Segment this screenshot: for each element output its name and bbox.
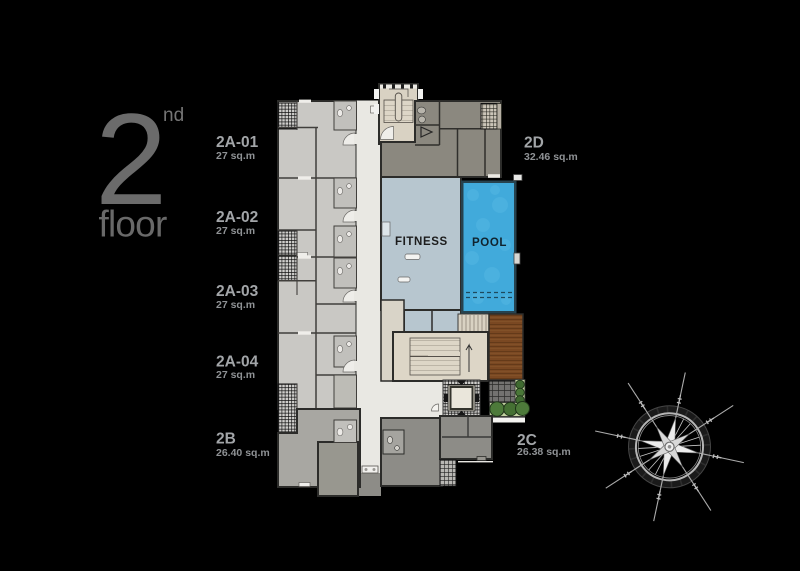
svg-text:26.38 sq.m: 26.38 sq.m [517,446,571,458]
svg-text:FITNESS: FITNESS [395,236,448,248]
svg-text:POOL: POOL [472,237,507,249]
svg-text:2A-02: 2A-02 [216,209,258,226]
svg-text:2B: 2B [216,431,236,448]
svg-text:2A-01: 2A-01 [216,134,259,151]
svg-text:26.40 sq.m: 26.40 sq.m [216,447,270,459]
svg-text:floor: floor [99,204,167,245]
svg-text:27 sq.m: 27 sq.m [216,299,255,311]
svg-text:32.46 sq.m: 32.46 sq.m [524,151,578,163]
svg-text:27 sq.m: 27 sq.m [216,150,255,162]
svg-text:2A-03: 2A-03 [216,283,259,300]
svg-text:2D: 2D [524,135,544,152]
svg-text:nd: nd [163,105,184,126]
svg-text:27 sq.m: 27 sq.m [216,369,255,381]
svg-text:2A-04: 2A-04 [216,354,259,371]
svg-text:27 sq.m: 27 sq.m [216,225,255,237]
